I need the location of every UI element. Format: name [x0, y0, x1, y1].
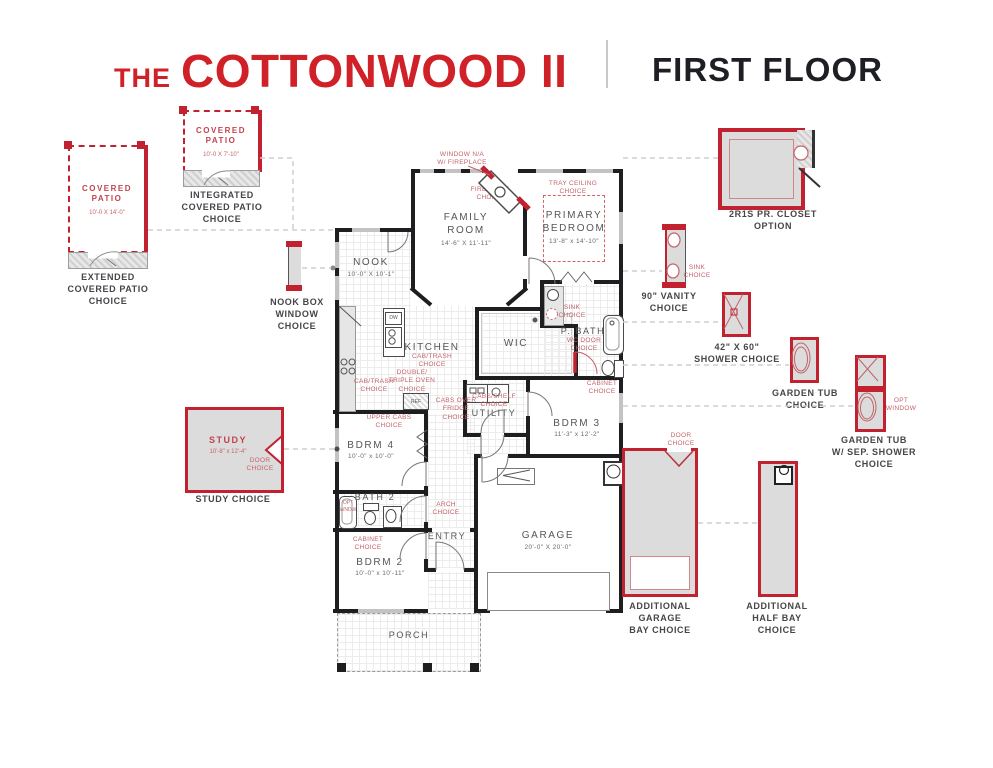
- sep-shower-tub-icons: [857, 357, 878, 421]
- door-arcs: [98, 171, 555, 570]
- closet-light-icon: [794, 146, 808, 160]
- bath-fixture-icons: [342, 290, 619, 525]
- door-nook-patio: [388, 232, 408, 252]
- door-garage-house: [482, 456, 508, 482]
- connector-dot-study: [335, 447, 340, 452]
- option-inset-icons: [88, 146, 878, 475]
- patio-door-arcs: [90, 171, 230, 266]
- primary-closet-doors: [560, 272, 592, 282]
- study-door-notch: [266, 436, 282, 464]
- door-bath2: [400, 496, 426, 522]
- floorplan-page: THE COTTONWOOD II FIRST FLOOR: [0, 0, 993, 768]
- plan-linework: [0, 0, 993, 768]
- door-bdrm2: [400, 533, 426, 559]
- door-utility: [481, 410, 504, 433]
- vanity-sink-icons: [667, 233, 680, 278]
- door-bdrm4: [402, 462, 426, 486]
- wc-door-icon: [575, 352, 597, 374]
- add-garage-door-v: [665, 451, 693, 466]
- fireplace-icon: [468, 166, 529, 213]
- door-front-entry: [436, 542, 464, 570]
- half-bay-wh-circle: [780, 466, 789, 475]
- patio-door-gaps: [88, 171, 230, 252]
- family-chamfer-walls: [411, 288, 527, 305]
- option-connectors: [148, 158, 854, 523]
- closet-door-leaf: [799, 168, 820, 187]
- door-primary: [529, 258, 555, 284]
- door-hall: [481, 435, 504, 458]
- garden-tub-icon: [792, 343, 810, 373]
- bdrm4-bifold: [417, 430, 427, 458]
- kitchen-icons: [339, 306, 395, 374]
- shower-x-icon: [724, 294, 743, 329]
- connector-dot-nook: [331, 266, 336, 271]
- door-bdrm3: [528, 392, 552, 416]
